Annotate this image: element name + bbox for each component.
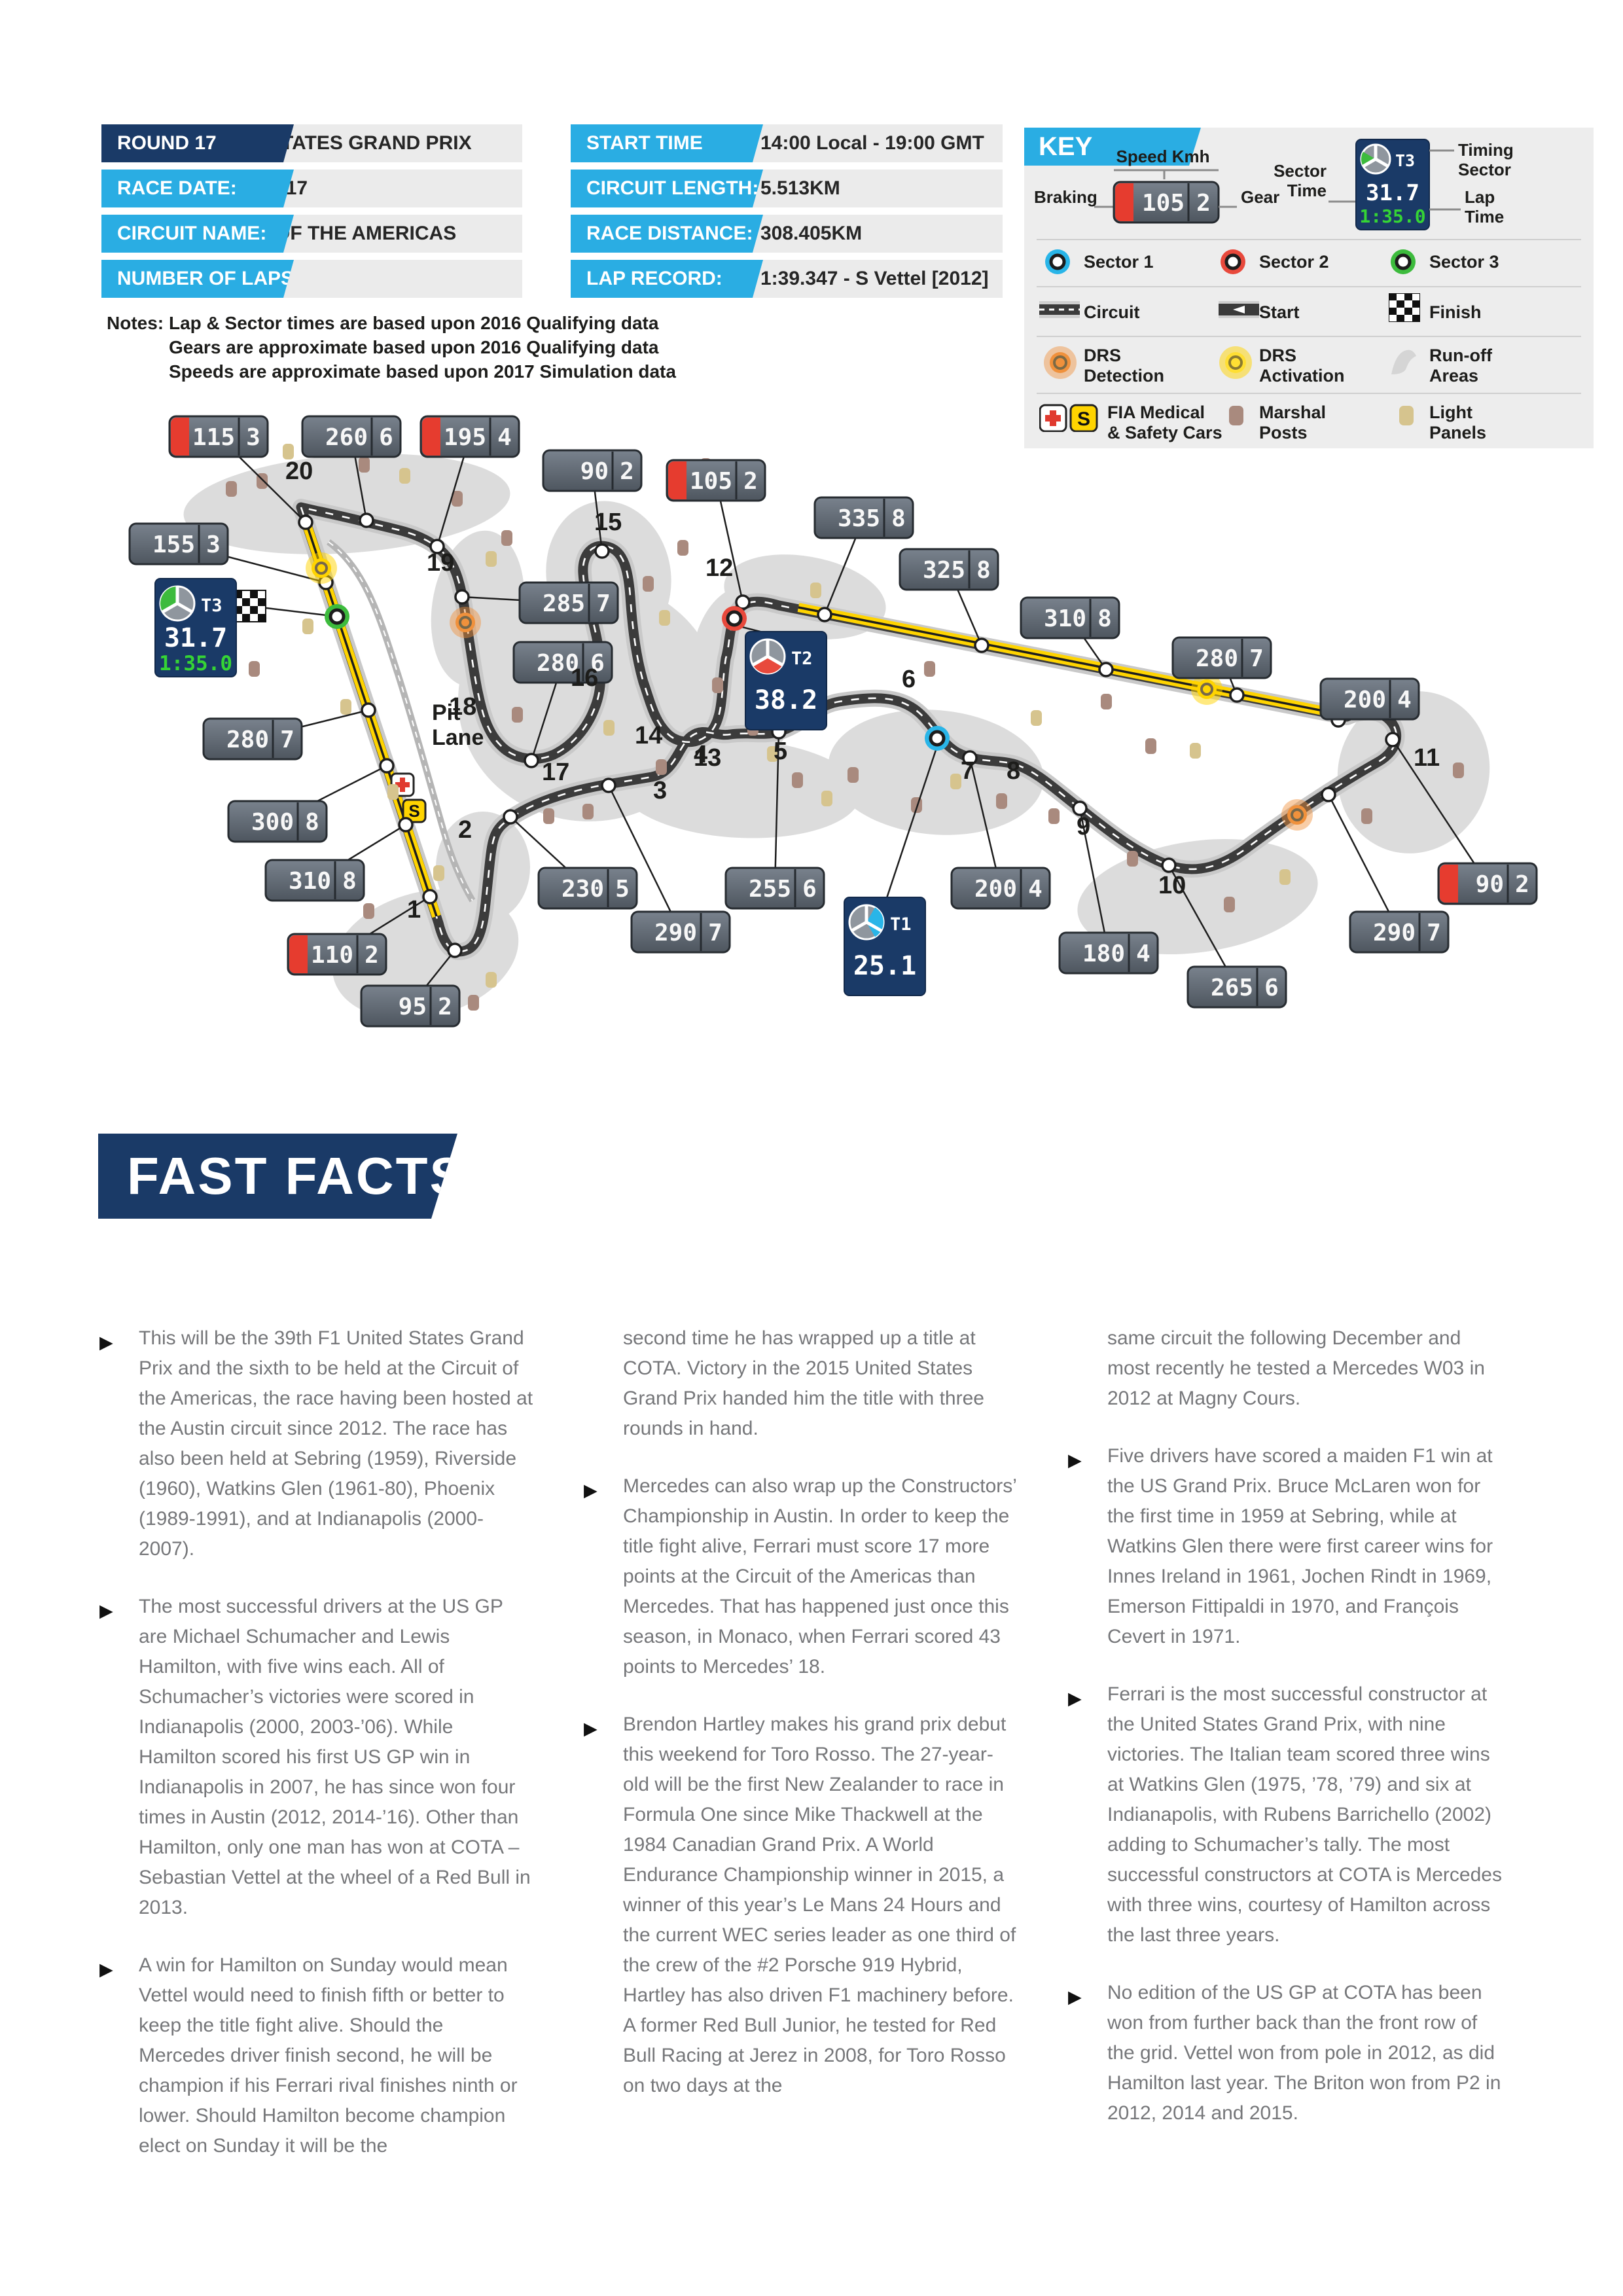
turn-number: 7	[961, 757, 974, 785]
speed-gear-box: 2305	[539, 868, 637, 908]
marshal-post	[1361, 808, 1372, 824]
gear-value: 4	[1397, 687, 1412, 713]
turn-number: 8	[1007, 757, 1020, 785]
notes-title: Notes:	[107, 313, 164, 334]
light-panel	[302, 619, 313, 634]
key-lap-time-label2: Time	[1465, 207, 1504, 226]
info-value: 14:00 Local - 19:00 GMT	[736, 124, 1003, 162]
key-speed-kmh-label: Speed Kmh	[1116, 147, 1209, 166]
speed-gear-box: 2656	[1188, 967, 1286, 1007]
finish-flag-cell	[242, 614, 250, 622]
gear-value: 5	[615, 876, 630, 903]
sector2-icon	[1219, 247, 1247, 276]
gear-value: 4	[497, 424, 512, 451]
light-panel	[659, 610, 670, 626]
speed-gear-box: 902	[1438, 863, 1537, 904]
light-panel	[486, 551, 497, 567]
light-panel	[340, 699, 351, 715]
gear-value: 8	[342, 868, 357, 895]
turn-number: 18	[449, 693, 476, 721]
sample-speed: 105	[1142, 190, 1185, 217]
gear-value: 2	[438, 994, 452, 1020]
drs-activation-icon	[1219, 346, 1253, 380]
key-timing-sector-label: Timing	[1458, 140, 1514, 160]
sector-marker-center	[330, 610, 344, 623]
speed-value: 180	[1082, 941, 1125, 967]
finish-flag-cell	[258, 598, 266, 606]
sample-lap-time: 1:35.0	[1359, 206, 1425, 227]
marshal-post	[677, 540, 688, 556]
track-point	[504, 810, 517, 823]
key-sector2-label: Sector 2	[1259, 252, 1329, 272]
light-panel	[387, 784, 399, 800]
bullet-icon: ▶	[99, 1596, 113, 1626]
marshal-post	[363, 903, 374, 919]
gear-value: 2	[743, 468, 758, 495]
finish-flag-cell	[250, 590, 258, 598]
gear-value: 6	[1264, 975, 1279, 1001]
track-point	[399, 818, 412, 831]
track-point	[1230, 689, 1243, 702]
info-label: LAP RECORD:	[571, 260, 763, 298]
track-point	[818, 608, 831, 621]
speed-value: 290	[1373, 920, 1416, 946]
speed-gear-box: 3108	[266, 860, 364, 901]
light-panel	[1279, 869, 1291, 885]
speed-value: 90	[580, 458, 609, 485]
key-circuit-label: Circuit	[1084, 302, 1140, 323]
finish-flag-cell	[242, 598, 250, 606]
speed-gear-box: 3258	[900, 549, 998, 590]
fact-paragraph: ▶The most successful drivers at the US G…	[99, 1592, 535, 1923]
track-point	[1386, 733, 1399, 746]
speed-gear-box: 2807	[1173, 637, 1271, 678]
marshal-post	[1048, 808, 1060, 824]
fast-facts-column-2: second time he has wrapped up a title at…	[584, 1323, 1019, 2128]
speed-value: 200	[1344, 687, 1386, 713]
track-point	[362, 704, 375, 717]
drs-marker-core	[1287, 805, 1307, 825]
speed-value: 310	[1044, 605, 1086, 632]
speed-gear-box: 2606	[302, 416, 401, 457]
key-timing-panel-sample: T3 31.7 1:35.0	[1356, 139, 1429, 230]
marshal-post	[512, 707, 523, 723]
marshal-post	[1224, 897, 1235, 912]
gear-value: 4	[1136, 941, 1150, 967]
key-sector-time-label2: Time	[1287, 181, 1327, 200]
drs-marker-core	[312, 558, 331, 578]
drs-marker-core	[1197, 679, 1217, 699]
turn-number: 10	[1158, 872, 1186, 899]
speed-value: 230	[562, 876, 604, 903]
bullet-icon: ▶	[1068, 1445, 1082, 1475]
track-point	[360, 514, 373, 527]
light-panel	[950, 774, 961, 789]
light-panel	[821, 791, 832, 806]
sample-sector-label: T3	[1395, 151, 1415, 170]
turn-number: 1	[407, 896, 421, 924]
turn-number: 15	[594, 509, 622, 536]
fact-paragraph: second time he has wrapped up a title at…	[584, 1323, 1019, 1444]
speed-value: 255	[749, 876, 791, 903]
track-point	[448, 944, 461, 957]
fast-facts-column-3: same circuit the following December and …	[1068, 1323, 1503, 2156]
turn-number: 11	[1414, 744, 1440, 772]
speed-value: 200	[974, 876, 1017, 903]
speed-gear-box: 2907	[1350, 912, 1448, 952]
sector-time-value: 25.1	[853, 951, 916, 981]
speed-gear-box: 2857	[520, 583, 618, 623]
speed-gear-box: 3358	[815, 497, 913, 538]
speed-gear-box: 1052	[667, 460, 765, 501]
speed-gear-box: 2807	[204, 719, 302, 759]
marshal-post	[501, 530, 512, 546]
turn-number: 13	[694, 744, 721, 772]
gear-value: 8	[305, 809, 319, 836]
page: { "colors":{"navy":"#1a3a67","cyan":"#2a…	[0, 0, 1623, 2296]
light-panel	[486, 972, 497, 988]
fact-paragraph: ▶Five drivers have scored a maiden F1 wi…	[1068, 1441, 1503, 1652]
sample-gear: 2	[1196, 190, 1211, 217]
track-point	[1162, 859, 1175, 872]
gear-value: 3	[206, 531, 221, 558]
bullet-icon: ▶	[1068, 1683, 1082, 1713]
speed-gear-box: 2004	[952, 868, 1050, 908]
marshal-post	[924, 661, 935, 677]
gear-value: 8	[1097, 605, 1112, 632]
light-panel	[399, 468, 410, 484]
speed-value: 285	[543, 590, 585, 617]
speed-value: 95	[399, 994, 427, 1020]
marshal-post	[996, 793, 1007, 809]
fact-paragraph: same circuit the following December and …	[1068, 1323, 1503, 1414]
gear-value: 7	[280, 726, 294, 753]
info-value: 308.405KM	[736, 215, 1003, 253]
finish-flag-icon	[1389, 293, 1420, 322]
speed-value: 260	[325, 424, 368, 451]
track-point	[602, 779, 615, 792]
turn-number: 20	[285, 457, 313, 485]
fast-facts-banner: FAST FACTS	[98, 1134, 457, 1219]
speed-gear-box: 3108	[1021, 598, 1119, 638]
speed-gear-box: 3008	[228, 801, 327, 842]
timing-panel-t3: T331.71:35.0	[155, 579, 236, 677]
divider	[1037, 286, 1581, 287]
sample-sector-time: 31.7	[1366, 180, 1419, 206]
bullet-icon: ▶	[1068, 1982, 1082, 2012]
timing-sector-label: T3	[201, 596, 223, 616]
track-point	[596, 545, 609, 558]
bullet-icon: ▶	[99, 1954, 113, 1984]
marshal-post	[643, 576, 654, 592]
timing-sector-label: T2	[791, 649, 813, 669]
turn-number: 9	[1077, 813, 1090, 840]
fact-paragraph: ▶Mercedes can also wrap up the Construct…	[584, 1471, 1019, 1682]
info-label: CIRCUIT NAME:	[101, 215, 294, 253]
timing-panel-t1: T125.1	[844, 897, 925, 996]
light-panel	[1190, 743, 1201, 759]
info-label: CIRCUIT LENGTH:	[571, 170, 763, 207]
gear-value: 8	[976, 557, 991, 584]
track-point	[455, 590, 469, 603]
sector-time-value: 38.2	[755, 685, 817, 715]
key-speed-box-sample: 105 2	[1114, 182, 1219, 223]
turn-number: 17	[542, 759, 569, 786]
gear-value: 4	[1028, 876, 1043, 903]
info-label: START TIME	[571, 124, 763, 162]
track-point	[1099, 663, 1113, 676]
track-point	[299, 516, 312, 529]
track-point	[423, 890, 437, 903]
lap-time-value: 1:35.0	[159, 652, 232, 675]
gear-value: 7	[596, 590, 611, 617]
key-braking-label: Braking	[1034, 187, 1097, 207]
speed-value: 265	[1211, 975, 1253, 1001]
speed-value: 280	[226, 726, 269, 753]
notes-line: Gears are approximate based upon 2016 Qu…	[169, 337, 658, 358]
fast-facts-column-1: ▶This will be the 39th F1 United States …	[99, 1323, 535, 2189]
speed-gear-box: 2907	[632, 912, 730, 952]
marshal-post	[226, 481, 237, 497]
speed-value: 290	[654, 920, 697, 946]
gear-value: 8	[891, 505, 906, 532]
speed-gear-box: 1954	[421, 416, 519, 457]
speed-value: 310	[289, 868, 331, 895]
gear-value: 7	[708, 920, 722, 946]
speed-value: 195	[444, 424, 486, 451]
speed-gear-box: 1804	[1060, 933, 1158, 973]
key-timing-sector-label2: Sector	[1458, 160, 1511, 179]
speed-value: 155	[152, 531, 195, 558]
divider	[1037, 239, 1581, 240]
sector-marker-center	[728, 612, 741, 625]
sector1-icon	[1043, 247, 1072, 276]
drs-detection-icon	[1043, 346, 1077, 380]
key-finish-label: Finish	[1429, 302, 1482, 323]
key-start-label: Start	[1259, 302, 1300, 323]
marshal-post	[1453, 762, 1464, 778]
gear-value: 2	[1515, 871, 1529, 898]
speed-value: 110	[311, 942, 353, 969]
turn-number: 14	[635, 722, 662, 749]
speed-value: 280	[1196, 645, 1238, 672]
bullet-icon: ▶	[584, 1475, 597, 1505]
marshal-post	[359, 457, 370, 473]
turn-number: 19	[427, 549, 454, 577]
turn-number: 3	[653, 777, 667, 804]
track-point	[380, 759, 393, 772]
turn-number: 12	[705, 554, 733, 582]
info-label: RACE DISTANCE:	[571, 215, 763, 253]
speed-gear-box: 1153	[169, 416, 268, 457]
fact-paragraph: ▶This will be the 39th F1 United States …	[99, 1323, 535, 1564]
track-point	[525, 754, 538, 767]
gear-value: 6	[802, 876, 817, 903]
marshal-post	[656, 759, 667, 775]
speed-value: 90	[1476, 871, 1504, 898]
marshal-post	[712, 677, 723, 693]
light-panel	[433, 865, 444, 881]
fact-paragraph: ▶Ferrari is the most successful construc…	[1068, 1679, 1503, 1950]
speed-gear-box: 2004	[1321, 679, 1419, 719]
sector-marker-center	[931, 732, 944, 745]
fact-paragraph: ▶A win for Hamilton on Sunday would mean…	[99, 1950, 535, 2161]
gear-value: 7	[1249, 645, 1264, 672]
sector3-icon	[1389, 247, 1418, 276]
marshal-post	[582, 804, 594, 819]
speed-value: 300	[251, 809, 294, 836]
track-point	[975, 639, 988, 652]
bullet-icon: ▶	[584, 1713, 597, 1744]
divider	[1037, 336, 1581, 337]
key-diagram: Speed Kmh Braking 105 2 Gear Sector Time…	[1029, 136, 1592, 233]
start-icon	[1219, 298, 1259, 321]
turn-number: 6	[902, 666, 916, 693]
speed-value: 115	[192, 424, 235, 451]
finish-flag-cell	[250, 606, 258, 614]
speed-value: 325	[923, 557, 965, 584]
fact-paragraph: ▶Brendon Hartley makes his grand prix de…	[584, 1710, 1019, 2101]
track-point	[1322, 788, 1335, 801]
speed-value: 335	[838, 505, 880, 532]
info-label: RACE DATE:	[101, 170, 294, 207]
info-value: 1:39.347 - S Vettel [2012]	[736, 260, 1003, 298]
light-panel	[1031, 710, 1042, 726]
timing-panel-t2: T238.2	[745, 632, 827, 730]
key-sector1-label: Sector 1	[1084, 252, 1154, 272]
marshal-post	[847, 767, 859, 783]
safety-car-s: S	[408, 801, 419, 821]
circuit-icon	[1039, 298, 1080, 321]
speed-gear-box: 902	[543, 450, 641, 491]
drs-marker-core	[455, 613, 475, 632]
circuit-map: PitLaneS11532606195490210523358325831082…	[85, 380, 1623, 1073]
marshal-post	[543, 808, 554, 824]
turn-number: 2	[458, 816, 472, 844]
info-value: 5.513KM	[736, 170, 1003, 207]
timing-sector-label: T1	[890, 914, 912, 935]
marshal-post	[792, 772, 803, 788]
finish-flag-cell	[258, 614, 266, 622]
speed-gear-box: 952	[361, 986, 459, 1026]
light-panel	[603, 720, 615, 736]
runoff-icon	[1389, 346, 1421, 377]
sector-time-value: 31.7	[164, 623, 227, 653]
turn-number: 16	[571, 664, 598, 692]
key-lap-time-label: Lap	[1465, 187, 1495, 207]
gear-value: 7	[1427, 920, 1441, 946]
speed-gear-box: 1553	[130, 524, 228, 564]
marshal-post	[1127, 851, 1138, 867]
gear-value: 3	[246, 424, 260, 451]
marshal-post	[1101, 694, 1112, 709]
notes-line: Lap & Sector times are based upon 2016 Q…	[169, 313, 658, 334]
bullet-icon: ▶	[99, 1327, 113, 1357]
gear-value: 2	[365, 942, 379, 969]
fact-paragraph: ▶No edition of the US GP at COTA has bee…	[1068, 1978, 1503, 2128]
info-label: NUMBER OF LAPS:	[101, 260, 294, 298]
gear-value: 2	[620, 458, 634, 485]
speed-value: 105	[690, 468, 732, 495]
light-panel	[810, 583, 821, 598]
marshal-post	[249, 661, 260, 677]
speed-gear-box: 1102	[288, 934, 386, 975]
info-label: ROUND 17	[101, 124, 294, 162]
speed-gear-box: 2556	[726, 868, 824, 908]
gear-value: 6	[379, 424, 393, 451]
key-gear-label: Gear	[1241, 187, 1279, 207]
key-sector-time-label: Sector	[1274, 161, 1327, 181]
marshal-post	[1145, 738, 1156, 754]
turn-number: 5	[774, 738, 787, 765]
key-sector3-label: Sector 3	[1429, 252, 1499, 272]
marshal-post	[468, 995, 479, 1011]
